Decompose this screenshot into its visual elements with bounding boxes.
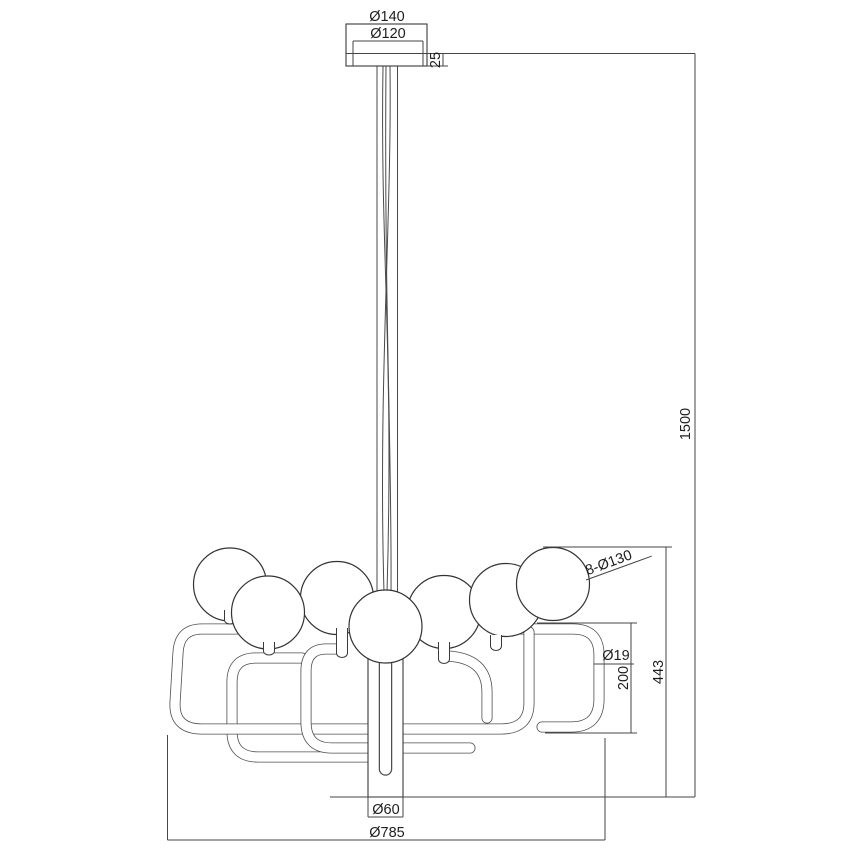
drawing-canvas: 8-Ø130 Ø140 Ø120 25 1500 Ø19 200 443 Ø60… (0, 0, 868, 868)
suspension-cables (377, 66, 398, 593)
dim-label-canopy-height: 25 (428, 52, 444, 68)
dim-label-fixture-height: 443 (651, 660, 667, 684)
globe-7 (517, 548, 590, 621)
globe-3-socket (337, 628, 348, 658)
globe-5-socket (439, 642, 450, 664)
dim-label-drop-height: 1500 (678, 408, 694, 440)
arm-tube-right-outer (500, 629, 599, 727)
dim-label-canopy-inner: Ø120 (370, 26, 405, 42)
globe-4 (349, 590, 422, 663)
dim-label-fixture-width: Ø785 (369, 825, 404, 841)
stem (368, 645, 403, 797)
dim-label-tube: Ø19 (602, 648, 629, 664)
dimension-lines: 8-Ø130 (168, 54, 696, 841)
chandelier-dimension-drawing: 8-Ø130 Ø140 Ø120 25 1500 Ø19 200 443 Ø60… (0, 0, 868, 868)
globe-2 (232, 576, 305, 649)
dim-label-stem: Ø60 (372, 802, 399, 818)
globe-6-socket (491, 635, 502, 651)
globe-2-socket (264, 642, 275, 655)
dim-label-canopy-outer: Ø140 (369, 9, 404, 25)
dim-label-arm-height: 200 (616, 666, 632, 690)
arm-tube-right-connector (447, 656, 487, 718)
dim-label-globes: 8-Ø130 (583, 547, 634, 579)
